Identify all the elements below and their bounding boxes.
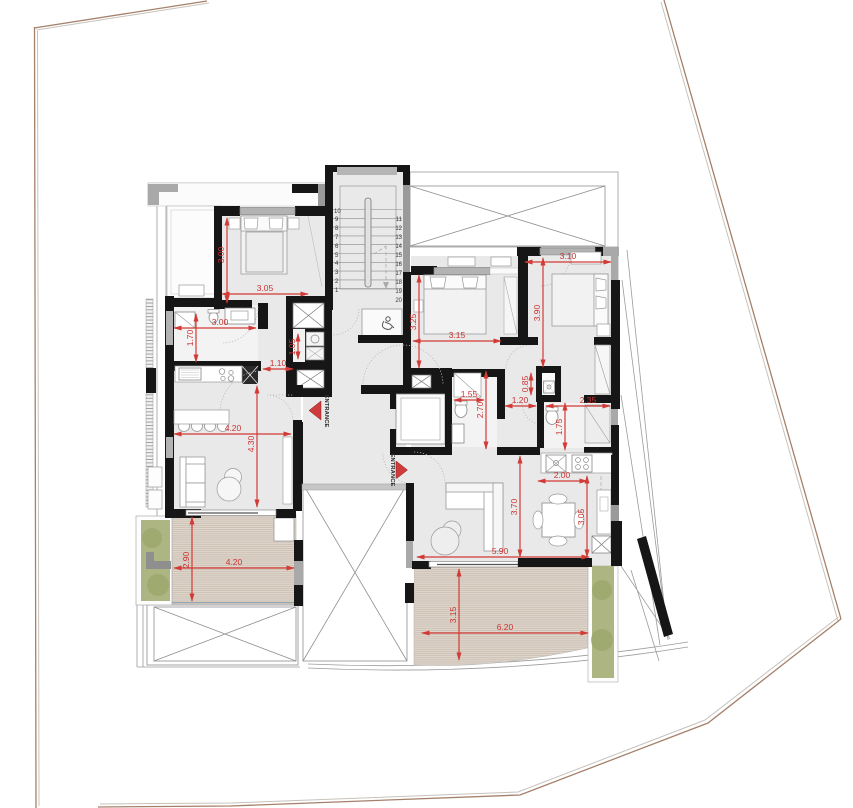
svg-text:3.00: 3.00: [216, 246, 226, 263]
svg-text:1.10: 1.10: [270, 358, 287, 368]
svg-text:1.05: 1.05: [287, 338, 297, 355]
svg-text:2.00: 2.00: [554, 470, 571, 480]
svg-text:3.15: 3.15: [448, 606, 458, 623]
svg-text:3.90: 3.90: [532, 304, 542, 321]
svg-text:ENTRANCE: ENTRANCE: [389, 453, 395, 486]
svg-text:1.55: 1.55: [461, 389, 478, 399]
svg-text:5.90: 5.90: [492, 546, 509, 556]
svg-text:2.90: 2.90: [181, 551, 191, 568]
svg-text:18: 18: [395, 280, 402, 286]
svg-text:19: 19: [395, 289, 402, 295]
svg-text:20: 20: [395, 298, 402, 304]
svg-text:3.05: 3.05: [576, 508, 586, 525]
svg-text:16: 16: [395, 262, 402, 268]
svg-text:2.70: 2.70: [475, 401, 485, 418]
svg-text:15: 15: [395, 253, 402, 259]
svg-text:2.35: 2.35: [580, 395, 597, 405]
svg-text:3.00: 3.00: [212, 317, 229, 327]
svg-text:1.75: 1.75: [554, 418, 564, 435]
svg-text:3.25: 3.25: [408, 313, 418, 330]
svg-text:0.85: 0.85: [520, 375, 530, 392]
svg-text:3.05: 3.05: [257, 283, 274, 293]
svg-text:1.70: 1.70: [185, 329, 195, 346]
svg-text:6.20: 6.20: [497, 622, 514, 632]
svg-text:4.20: 4.20: [226, 557, 243, 567]
svg-text:3.10: 3.10: [560, 251, 577, 261]
svg-text:ENTRANCE: ENTRANCE: [323, 394, 329, 427]
svg-text:14: 14: [395, 244, 402, 250]
svg-text:1.20: 1.20: [512, 395, 529, 405]
svg-text:12: 12: [395, 226, 402, 232]
svg-text:4.20: 4.20: [225, 423, 242, 433]
svg-text:4.30: 4.30: [246, 435, 256, 452]
svg-text:17: 17: [395, 271, 402, 277]
svg-text:3.70: 3.70: [509, 498, 519, 515]
svg-text:10: 10: [334, 209, 341, 215]
svg-text:11: 11: [396, 217, 403, 223]
svg-text:13: 13: [395, 235, 402, 241]
svg-text:3.15: 3.15: [449, 330, 466, 340]
